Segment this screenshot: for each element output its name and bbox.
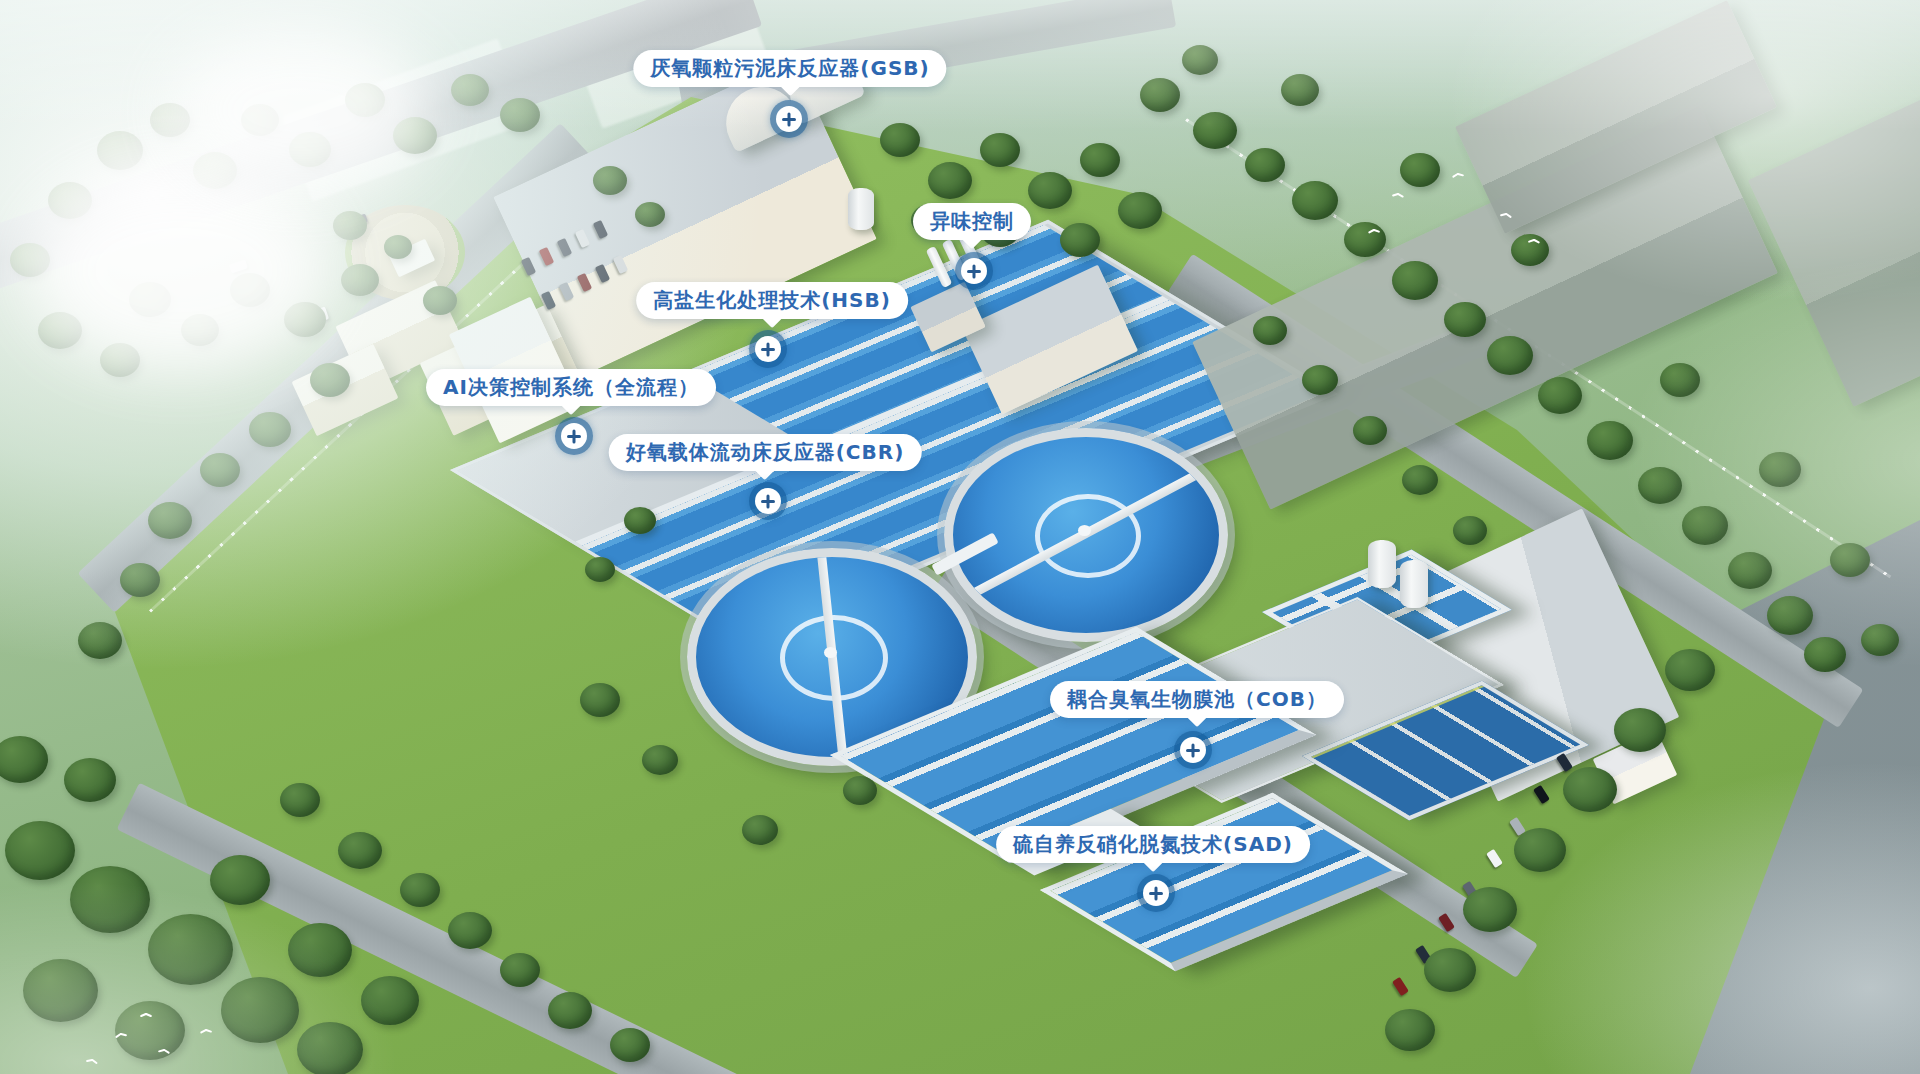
- tree: [1182, 45, 1218, 75]
- bird: [1392, 191, 1405, 198]
- tree: [221, 977, 299, 1043]
- label-hsb[interactable]: 高盐生化处理技术(HSB): [636, 282, 908, 319]
- tree: [181, 314, 219, 346]
- marker-sad[interactable]: [1137, 874, 1175, 912]
- label-gsb-text: 厌氧颗粒污泥床反应器(GSB): [650, 56, 929, 80]
- tree: [1728, 552, 1772, 589]
- marker-ai-control[interactable]: [555, 417, 593, 455]
- tree: [1665, 649, 1715, 691]
- tree: [1402, 465, 1438, 495]
- tree: [1060, 223, 1100, 257]
- bird: [86, 1057, 99, 1065]
- tree: [341, 264, 379, 296]
- tree: [284, 302, 326, 337]
- tree: [333, 211, 367, 240]
- plant-aerial-view: 厌氧颗粒污泥床反应器(GSB) 异味控制 高盐生化处理技术(HSB) AI决策控…: [0, 0, 1920, 1074]
- tree: [624, 507, 656, 534]
- tree: [100, 343, 140, 377]
- tree: [280, 783, 320, 817]
- label-odor-text: 异味控制: [930, 209, 1014, 233]
- plus-icon: [1180, 737, 1206, 763]
- tree: [393, 117, 437, 154]
- tree: [48, 182, 92, 219]
- tree: [148, 502, 192, 539]
- tree: [23, 959, 98, 1022]
- tree: [193, 152, 237, 189]
- tree: [500, 953, 540, 987]
- marker-cob[interactable]: [1174, 731, 1212, 769]
- label-cbr[interactable]: 好氧载体流动床反应器(CBR): [609, 434, 922, 471]
- tree: [297, 1022, 363, 1074]
- tree: [1514, 828, 1566, 872]
- tree: [1292, 181, 1338, 220]
- tree: [1487, 336, 1533, 375]
- clarifier-bridge: [812, 548, 851, 766]
- tree: [70, 866, 150, 933]
- tree: [1767, 596, 1813, 635]
- tree: [288, 923, 352, 977]
- tree: [10, 243, 50, 277]
- storage-tank: [1400, 560, 1428, 608]
- tree: [345, 83, 385, 117]
- tree: [1759, 452, 1801, 487]
- tree: [1245, 148, 1285, 182]
- tree: [1028, 172, 1072, 209]
- tree: [423, 286, 457, 315]
- tree: [150, 103, 190, 137]
- label-cob-text: 耦合臭氧生物膜池（COB）: [1067, 687, 1327, 711]
- label-odor-control[interactable]: 异味控制: [913, 203, 1031, 240]
- tree: [1118, 192, 1162, 229]
- tree: [1392, 261, 1438, 300]
- label-ai-control[interactable]: AI决策控制系统（全流程）: [426, 369, 716, 406]
- tree: [1682, 506, 1728, 545]
- bird: [200, 1027, 212, 1034]
- tree: [0, 736, 48, 783]
- tree: [1830, 543, 1870, 577]
- tree: [5, 821, 75, 880]
- tree: [120, 563, 160, 597]
- tree: [241, 104, 279, 136]
- tree: [880, 123, 920, 157]
- tree: [230, 273, 270, 307]
- tree: [928, 162, 972, 199]
- tree: [843, 776, 877, 805]
- tree: [451, 74, 489, 106]
- tree: [1080, 143, 1120, 177]
- label-gsb[interactable]: 厌氧颗粒污泥床反应器(GSB): [633, 50, 946, 87]
- tree: [64, 758, 116, 802]
- tree: [1463, 887, 1517, 932]
- tree: [642, 745, 678, 775]
- tree: [1614, 708, 1666, 752]
- tree: [78, 622, 122, 659]
- plus-icon: [1143, 880, 1169, 906]
- label-ai-text: AI决策控制系统（全流程）: [443, 375, 699, 399]
- tree: [1587, 421, 1633, 460]
- tree: [1638, 467, 1682, 504]
- label-cob[interactable]: 耦合臭氧生物膜池（COB）: [1050, 681, 1344, 718]
- tree: [1861, 624, 1899, 656]
- marker-odor-control[interactable]: [955, 252, 993, 290]
- tree: [38, 312, 82, 349]
- tree: [1453, 516, 1487, 545]
- tree: [610, 1028, 650, 1062]
- marker-cbr[interactable]: [749, 482, 787, 520]
- tree: [1563, 767, 1617, 812]
- tree: [980, 133, 1020, 167]
- plus-icon: [755, 336, 781, 362]
- tree: [1353, 416, 1387, 445]
- tree: [97, 131, 143, 170]
- tree: [400, 873, 440, 907]
- tree: [548, 992, 592, 1029]
- tree: [742, 815, 778, 845]
- storage-tank: [1368, 540, 1396, 588]
- tree: [148, 914, 233, 985]
- plus-icon: [561, 423, 587, 449]
- plus-icon: [776, 106, 802, 132]
- marker-gsb[interactable]: [770, 100, 808, 138]
- tree: [593, 166, 627, 195]
- tree: [1400, 153, 1440, 187]
- tree: [1660, 363, 1700, 397]
- clarifier-bridge: [959, 463, 1212, 603]
- marker-hsb[interactable]: [749, 330, 787, 368]
- bird: [1368, 228, 1380, 235]
- tree: [1140, 78, 1180, 112]
- tree: [1385, 1009, 1435, 1051]
- tree: [210, 855, 270, 905]
- tree: [1302, 365, 1338, 395]
- tree: [1193, 112, 1237, 149]
- tree: [500, 98, 540, 132]
- tree: [200, 453, 240, 487]
- bird: [140, 1012, 152, 1018]
- label-sad[interactable]: 硫自养反硝化脱氮技术(SAD): [996, 826, 1310, 863]
- tree: [1281, 74, 1319, 106]
- label-cbr-text: 好氧载体流动床反应器(CBR): [626, 440, 905, 464]
- label-sad-text: 硫自养反硝化脱氮技术(SAD): [1013, 832, 1293, 856]
- plus-icon: [755, 488, 781, 514]
- tree: [1424, 948, 1476, 992]
- bird: [1528, 238, 1540, 245]
- tree: [448, 912, 492, 949]
- tree: [580, 683, 620, 717]
- plus-icon: [961, 258, 987, 284]
- tree: [1253, 316, 1287, 345]
- tree: [361, 976, 419, 1025]
- tree: [310, 363, 350, 397]
- storage-tank: [848, 188, 874, 230]
- label-hsb-text: 高盐生化处理技术(HSB): [653, 288, 891, 312]
- tree: [129, 282, 171, 317]
- tree: [338, 832, 382, 869]
- tree: [1538, 377, 1582, 414]
